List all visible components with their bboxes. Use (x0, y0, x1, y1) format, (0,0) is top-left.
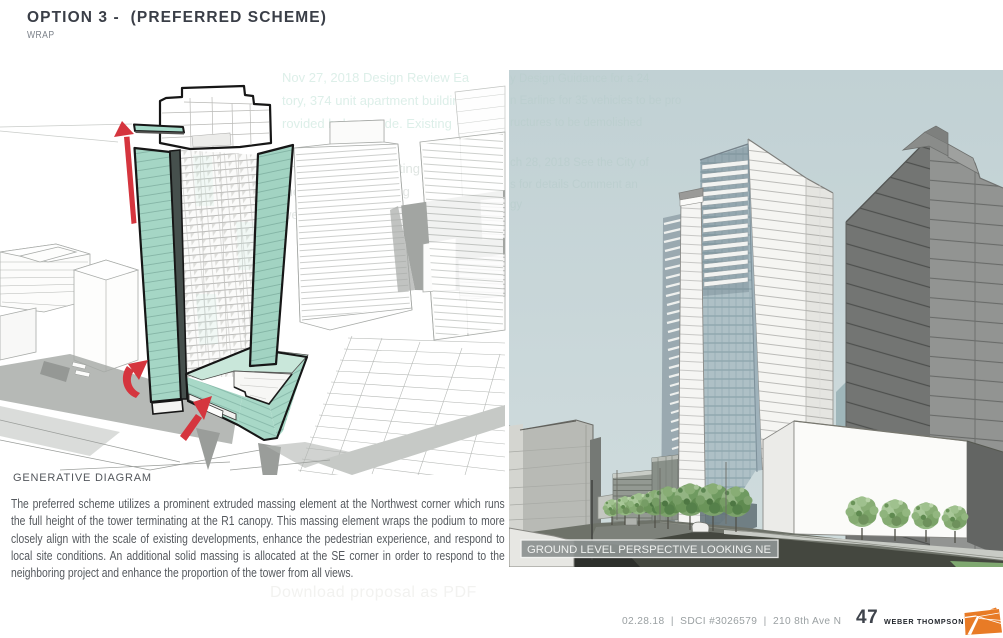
svg-text:Nov 27, 2018 Design Review Ea: Nov 27, 2018 Design Review Ea (282, 70, 470, 85)
svg-text:n Earline for 35 vehicles to b: n Earline for 35 vehicles to be pro (510, 95, 681, 107)
svg-text:GROUND LEVEL PERSPECTIVE LOOKI: GROUND LEVEL PERSPECTIVE LOOKING NE (527, 544, 771, 556)
svg-text:tory, 374 unit apartment build: tory, 374 unit apartment buildin (282, 93, 460, 108)
svg-text:ructures to be demolished: ructures to be demolished (510, 117, 642, 129)
svg-text:ch 28, 2018 See the City of: ch 28, 2018 See the City of (510, 157, 650, 169)
svg-text:s for details Comment an: s for details Comment an (510, 179, 638, 191)
svg-text:gy: gy (510, 199, 522, 211)
svg-text:y Design Guidance for a 24: y Design Guidance for a 24 (510, 73, 650, 85)
